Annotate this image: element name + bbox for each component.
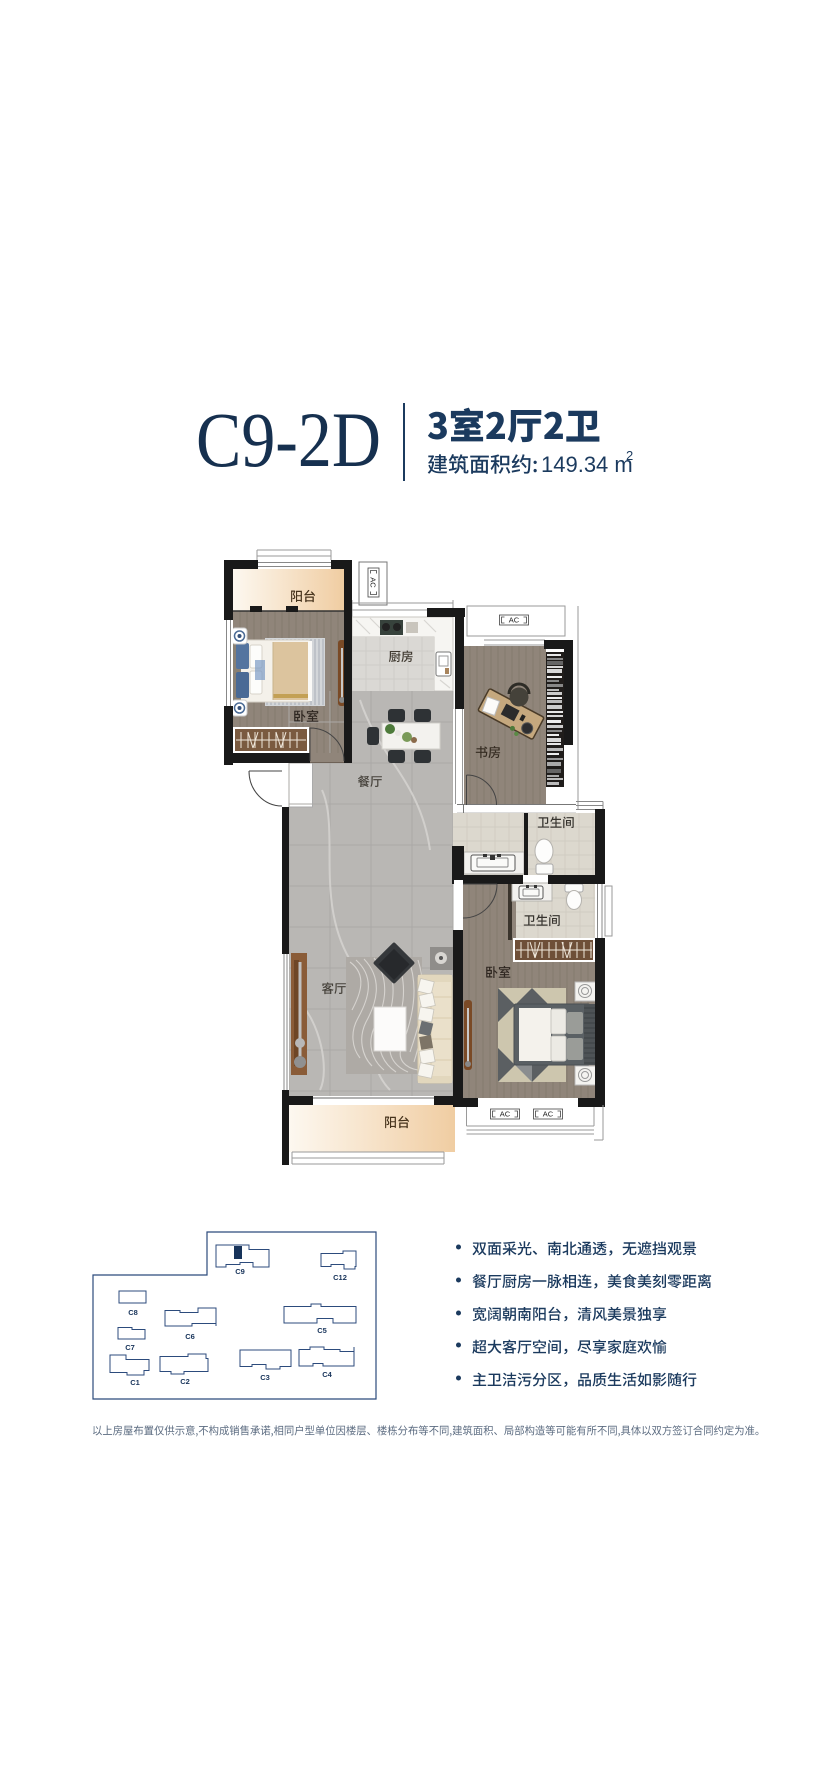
- svg-text:C9: C9: [235, 1267, 245, 1276]
- svg-text:C4: C4: [322, 1370, 332, 1379]
- svg-text:C3: C3: [260, 1373, 270, 1382]
- svg-text:2: 2: [626, 448, 633, 463]
- svg-text:149.34 m: 149.34 m: [541, 452, 633, 477]
- svg-text:AC: AC: [500, 1110, 511, 1119]
- svg-text:C6: C6: [185, 1332, 195, 1341]
- svg-text:C7: C7: [125, 1343, 135, 1352]
- svg-text:C1: C1: [130, 1378, 140, 1387]
- svg-text:C9-2D: C9-2D: [196, 396, 381, 483]
- svg-text:C8: C8: [128, 1308, 138, 1317]
- svg-text:C12: C12: [333, 1273, 347, 1282]
- svg-text:C2: C2: [180, 1377, 190, 1386]
- svg-text:AC: AC: [509, 616, 520, 625]
- svg-text:AC: AC: [369, 577, 378, 588]
- svg-text:C5: C5: [317, 1326, 327, 1335]
- svg-text:AC: AC: [543, 1110, 554, 1119]
